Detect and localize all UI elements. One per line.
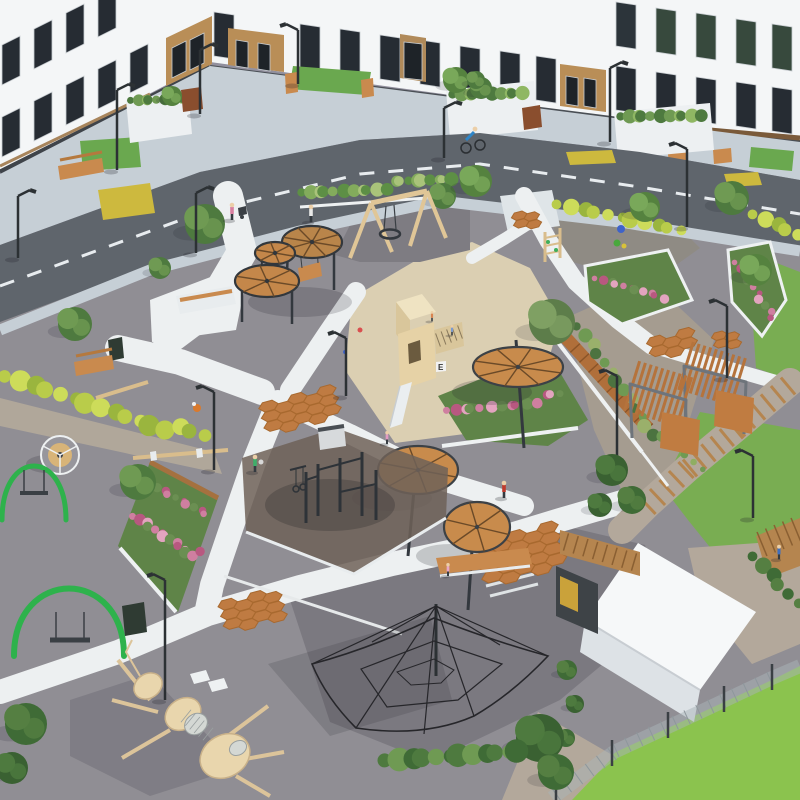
hedge-row-left	[53, 387, 68, 402]
lawn-patch-topright	[749, 147, 794, 171]
window	[772, 87, 792, 134]
flowers-triangle	[639, 287, 647, 295]
flowers-sand	[546, 390, 554, 398]
shopping-bag	[259, 460, 264, 465]
hedge-row-left	[182, 424, 197, 439]
flowers-right	[732, 260, 738, 266]
window	[772, 24, 792, 71]
flowers-triangle	[651, 292, 658, 299]
flowers-center	[163, 490, 171, 498]
swing-planter-grasses	[317, 186, 328, 197]
flowers-center	[200, 511, 207, 518]
flowers-triangle	[599, 276, 608, 285]
bush	[23, 718, 44, 739]
cyclist-head	[473, 127, 478, 132]
planter-grasses	[645, 111, 655, 121]
climb-hold	[546, 240, 550, 244]
street-lamp-base	[740, 518, 754, 523]
window	[340, 29, 360, 76]
hedge-dark-right	[771, 578, 784, 591]
flowers-triangle	[629, 285, 638, 294]
street-lamp-head	[735, 450, 741, 452]
street-lamp-head	[456, 102, 462, 104]
round-canopy-hub	[516, 365, 520, 369]
tower-sign-letter: E	[438, 363, 444, 372]
garden-shrubs	[600, 358, 610, 368]
window	[2, 108, 20, 157]
kite-toy	[617, 225, 625, 233]
flowers-center	[190, 503, 198, 511]
pedestrian-head	[502, 481, 507, 486]
window	[616, 2, 636, 49]
street-lamp-head	[196, 386, 202, 388]
window	[536, 56, 556, 103]
trash-bin	[122, 602, 147, 636]
flowers-triangle	[592, 276, 598, 282]
round-canopy-hub	[273, 251, 277, 255]
window	[300, 24, 320, 71]
child-in-sand-head	[451, 325, 454, 328]
bench	[713, 148, 732, 164]
pinwheel-toy	[614, 240, 621, 247]
scene-render: E	[0, 0, 800, 800]
street-lamp-base	[597, 142, 611, 147]
swing-planter-grasses	[328, 186, 338, 196]
bush-row-bottom	[505, 739, 529, 763]
planter-grasses	[515, 86, 529, 100]
hedge-dark-right	[748, 552, 758, 562]
window	[696, 13, 716, 60]
flowers-sand	[451, 404, 463, 416]
planter-grasses	[676, 111, 686, 121]
flowers-sand	[443, 407, 450, 414]
bush	[566, 667, 576, 677]
tree	[643, 203, 658, 218]
garden-shrubs	[590, 348, 601, 359]
beam-support	[196, 448, 203, 458]
hedge-row-left	[36, 381, 53, 398]
bird-toy-head	[192, 402, 196, 406]
street-lamp-head	[129, 84, 135, 86]
street-lamp-base	[5, 258, 19, 263]
swing-planter-grasses	[381, 183, 394, 196]
entrance-door	[258, 43, 270, 71]
flowers-sand	[557, 390, 564, 397]
flowers-sand	[475, 404, 483, 412]
stroller-wheel	[240, 215, 244, 219]
window	[656, 8, 676, 55]
street-lamp-head	[147, 574, 153, 576]
hedge-row-right	[587, 206, 600, 219]
corten-planter	[522, 105, 542, 130]
hedge-row-right	[563, 199, 580, 216]
street-lamp-head	[328, 332, 334, 334]
flowers-right	[754, 295, 763, 304]
hedge-row-left	[91, 398, 110, 417]
tree	[441, 192, 454, 205]
street-lamp-base	[201, 470, 215, 475]
flowers-triangle	[660, 294, 669, 303]
window	[736, 19, 756, 66]
bush	[10, 763, 26, 779]
street-lamp-base	[333, 396, 347, 401]
window	[34, 20, 52, 69]
tree	[159, 265, 170, 276]
round-canopy-hub	[265, 279, 269, 283]
planter-grasses	[127, 97, 134, 104]
hedge-row-far-right	[778, 223, 791, 236]
street-lamp-base	[104, 170, 118, 175]
street-lamp-base	[714, 378, 728, 383]
beam-support	[150, 451, 157, 461]
hedge-dark-right	[782, 588, 793, 599]
entrance-door	[584, 78, 596, 108]
hedge-row-right	[552, 200, 562, 210]
entrance-door	[172, 41, 186, 78]
street-lamp-base	[674, 227, 688, 232]
bush	[574, 701, 583, 710]
flowers-center	[172, 494, 179, 501]
tree	[730, 193, 747, 210]
street-lamp-base	[431, 158, 445, 163]
planter-grasses	[695, 109, 708, 122]
tree	[599, 501, 611, 513]
garden-grasses	[690, 459, 697, 466]
garden-grasses	[700, 467, 706, 473]
tree	[203, 218, 223, 238]
swing-planter-grasses	[424, 174, 435, 185]
round-canopy-hub	[310, 240, 314, 244]
window	[66, 76, 84, 125]
bush-row-bottom	[486, 745, 502, 761]
street-lamp-head	[30, 190, 36, 192]
flowers-sand	[532, 398, 543, 409]
window	[66, 4, 84, 53]
bush	[565, 735, 574, 744]
bench	[285, 72, 298, 94]
hedge-row-right	[661, 222, 672, 233]
street-lamp-base	[285, 84, 299, 89]
pedestrian-head	[230, 203, 235, 208]
tree	[475, 77, 484, 86]
street-lamp-head	[212, 44, 218, 46]
tree	[630, 496, 644, 510]
window	[736, 82, 756, 129]
bush-row-bottom	[412, 748, 431, 767]
hedge-row-far-right	[748, 210, 758, 220]
street-lamp-head	[622, 62, 628, 64]
window	[380, 35, 400, 82]
tactile-strip-yellow	[566, 150, 616, 165]
window	[616, 66, 636, 113]
child-in-sand-head	[431, 311, 434, 314]
flowers-triangle	[620, 283, 627, 290]
tree	[171, 93, 181, 103]
flowers-right	[767, 315, 774, 322]
pedestrian-head	[253, 455, 258, 460]
sand-toy	[358, 328, 363, 333]
street-lamp-head	[208, 187, 214, 189]
street-lamp-base	[187, 114, 201, 119]
street-lamp-head	[669, 143, 675, 145]
flowers-triangle	[611, 280, 619, 288]
entrance-door	[190, 33, 204, 70]
bush-row-bottom	[428, 749, 444, 765]
courtyard-render: Residential courtyard playground – aeria…	[0, 0, 800, 800]
planter-grasses	[507, 88, 517, 98]
swing-planter-grasses	[361, 185, 371, 195]
flowers-center	[195, 547, 204, 556]
pine-tree	[554, 767, 572, 785]
tree	[73, 319, 90, 336]
pinwheel-toy	[622, 244, 627, 249]
hedge-row-left	[199, 429, 212, 442]
child-head	[385, 431, 388, 434]
pergola-lamp-head	[599, 370, 605, 372]
flowers-center	[181, 499, 190, 508]
flowers-sand	[465, 404, 474, 413]
child-running-head	[446, 563, 449, 566]
tree	[610, 465, 626, 481]
person-sitting-head	[777, 545, 781, 549]
flowers-center	[143, 522, 152, 531]
window	[34, 92, 52, 141]
entrance-door	[236, 40, 248, 68]
bench	[361, 78, 374, 98]
hedge-row-left	[117, 409, 132, 424]
tree	[474, 176, 490, 192]
window	[2, 36, 20, 85]
round-canopy-hub	[475, 525, 479, 529]
street-lamp-head	[280, 24, 286, 26]
entrance-door	[404, 42, 422, 80]
flowers-right	[768, 308, 776, 316]
tree	[549, 315, 572, 338]
hedge-row-right	[602, 209, 613, 220]
window	[98, 60, 116, 109]
entrance-door	[566, 76, 578, 106]
play-tower-opening	[408, 340, 421, 364]
planter-grasses	[143, 95, 152, 104]
tree	[754, 265, 770, 281]
planter-grasses	[635, 111, 646, 122]
swing-planter-grasses	[394, 176, 404, 186]
street-lamp-base	[183, 253, 197, 258]
tree	[136, 477, 154, 495]
hedge-row-far-right	[758, 211, 775, 228]
pine-tree	[537, 731, 561, 755]
climb-hold	[554, 248, 558, 252]
flowers-right	[761, 301, 769, 309]
pedestrian-head	[309, 205, 314, 210]
street-lamp-head	[709, 300, 715, 302]
hedge-row-left	[155, 420, 174, 439]
